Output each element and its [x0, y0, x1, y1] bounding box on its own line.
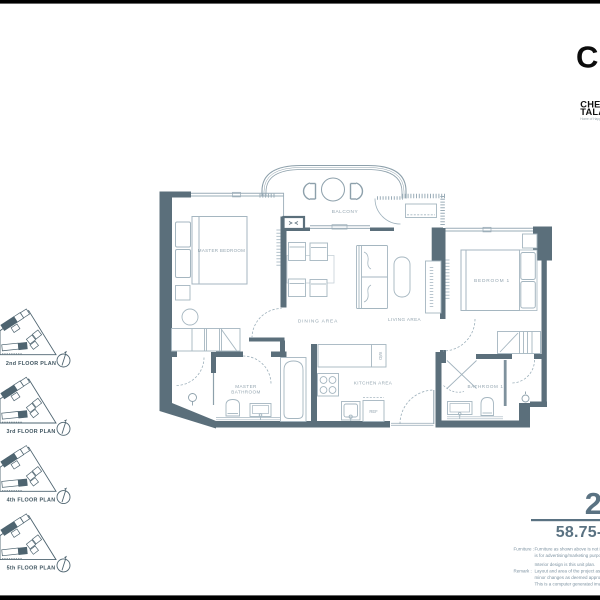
- svg-text:4th FLOOR PLAN: 4th FLOOR PLAN: [7, 497, 56, 503]
- svg-text:Home of Happiness: Home of Happiness: [580, 117, 600, 121]
- svg-text:Furniture as shown above is no: Furniture as shown above is not included…: [535, 547, 600, 552]
- svg-text:LIVING AREA: LIVING AREA: [388, 317, 422, 322]
- svg-text:2nd FLOOR PLAN: 2nd FLOOR PLAN: [6, 361, 56, 367]
- svg-text:Layout and area of the project: Layout and area of the project as shown …: [535, 569, 600, 574]
- svg-text:Interior design is this unit p: Interior design is this unit plan.: [535, 562, 596, 567]
- svg-text:W/D: W/D: [378, 352, 383, 360]
- svg-text:BEDROOM 1: BEDROOM 1: [474, 278, 510, 284]
- svg-text:This is a computer generated i: This is a computer generated image of th…: [535, 581, 600, 586]
- svg-text:Remark :: Remark :: [514, 569, 532, 574]
- svg-text:Furniture :: Furniture :: [514, 547, 535, 552]
- svg-text:5th FLOOR PLAN: 5th FLOOR PLAN: [7, 566, 56, 572]
- svg-text:3rd FLOOR PLAN: 3rd FLOOR PLAN: [6, 429, 55, 435]
- svg-text:58.75-59.25 SQ.M.: 58.75-59.25 SQ.M.: [556, 524, 600, 541]
- svg-text:REF: REF: [369, 409, 378, 414]
- svg-text:minor changes as deemed approp: minor changes as deemed appropriate by r…: [535, 575, 600, 580]
- svg-text:BATHROOM 1: BATHROOM 1: [467, 384, 503, 389]
- svg-text:MASTER BEDROOM: MASTER BEDROOM: [198, 248, 245, 253]
- svg-text:TALAT: TALAT: [580, 107, 600, 117]
- svg-text:CH: CH: [576, 40, 600, 75]
- svg-text:KITCHEN AREA: KITCHEN AREA: [354, 380, 393, 385]
- svg-text:BALCONY: BALCONY: [332, 209, 359, 215]
- svg-text:BATHROOM: BATHROOM: [231, 389, 260, 394]
- svg-text:DINING AREA: DINING AREA: [298, 318, 338, 324]
- svg-text:MASTER: MASTER: [235, 384, 257, 389]
- svg-text:is for advertising/marketing p: is for advertising/marketing purpose of …: [535, 553, 600, 558]
- svg-text:2B: 2B: [585, 486, 600, 521]
